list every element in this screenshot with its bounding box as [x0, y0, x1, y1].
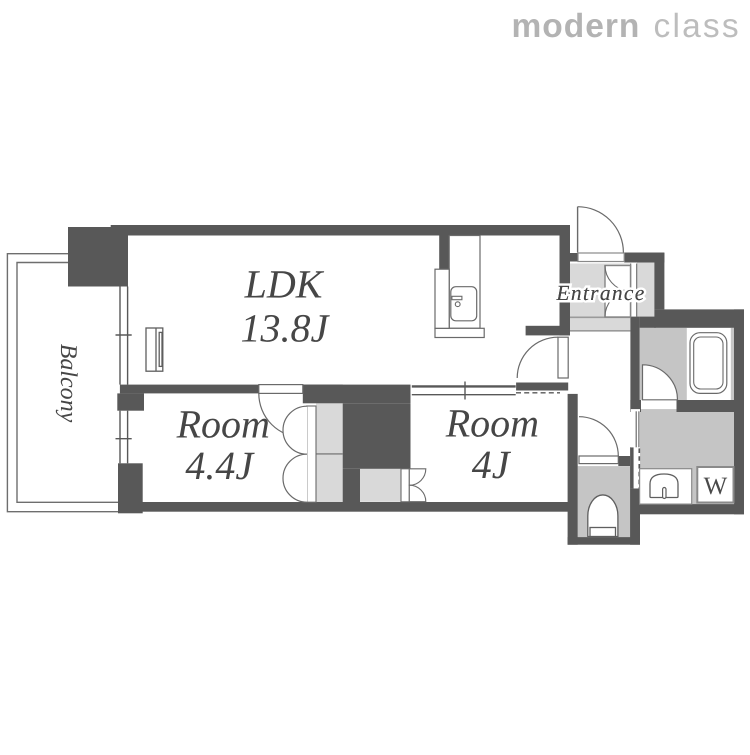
svg-text:4.4J: 4.4J — [185, 443, 255, 488]
svg-text:Room: Room — [445, 401, 539, 446]
svg-text:W: W — [704, 473, 728, 500]
svg-text:Balcony: Balcony — [55, 344, 81, 423]
svg-text:4J: 4J — [472, 442, 512, 487]
svg-text:13.8J: 13.8J — [241, 306, 331, 351]
svg-text:modern: modern — [512, 8, 641, 45]
svg-text:class: class — [654, 8, 741, 45]
svg-text:LDK: LDK — [244, 262, 325, 307]
svg-text:Entrance: Entrance — [555, 281, 645, 305]
svg-text:Room: Room — [176, 401, 270, 446]
